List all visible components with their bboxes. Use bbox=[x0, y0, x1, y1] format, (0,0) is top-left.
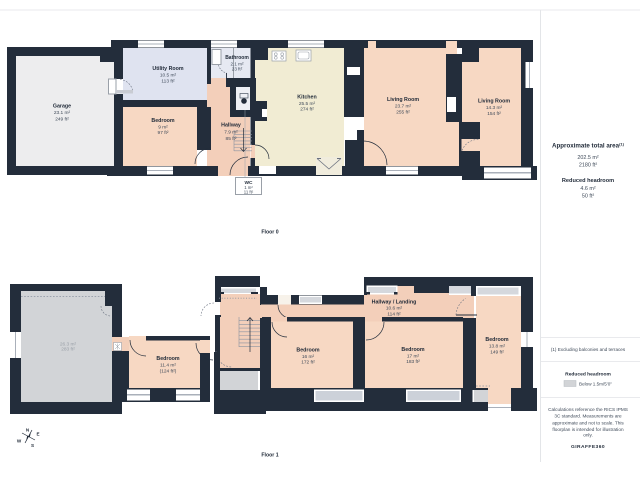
svg-text:Garage: Garage bbox=[53, 104, 71, 110]
svg-text:Utility Room: Utility Room bbox=[152, 66, 183, 72]
svg-text:14.3 m²: 14.3 m² bbox=[486, 105, 503, 111]
svg-text:Kitchen: Kitchen bbox=[297, 95, 316, 101]
svg-text:16 m²: 16 m² bbox=[302, 354, 315, 360]
svg-text:Bedroom: Bedroom bbox=[401, 347, 425, 353]
svg-text:Approximate total area(1): Approximate total area(1) bbox=[552, 142, 625, 150]
svg-text:Reduced headroom: Reduced headroom bbox=[565, 372, 611, 378]
svg-text:7.9 m²: 7.9 m² bbox=[224, 130, 238, 136]
svg-text:Floor 1: Floor 1 bbox=[261, 453, 278, 459]
svg-text:283 ft²: 283 ft² bbox=[61, 347, 75, 353]
svg-text:10.5 m²: 10.5 m² bbox=[160, 72, 177, 78]
svg-text:13.8 m²: 13.8 m² bbox=[489, 344, 506, 350]
svg-text:Living Room: Living Room bbox=[387, 97, 419, 103]
svg-text:97 ft²: 97 ft² bbox=[158, 130, 169, 136]
svg-text:25.5 m²: 25.5 m² bbox=[299, 101, 316, 107]
svg-text:Living Room: Living Room bbox=[478, 99, 510, 105]
svg-text:11.4 m²: 11.4 m² bbox=[160, 362, 176, 368]
svg-text:Below 1.5m/5'0": Below 1.5m/5'0" bbox=[579, 382, 612, 387]
svg-text:Bedroom: Bedroom bbox=[485, 337, 509, 343]
svg-text:(1) Excluding balconies and te: (1) Excluding balconies and terraces bbox=[551, 347, 626, 352]
svg-text:10.6 m²: 10.6 m² bbox=[386, 306, 403, 312]
svg-text:3C standard. Measurements are: 3C standard. Measurements are bbox=[554, 414, 622, 419]
svg-text:Hallway / Landing: Hallway / Landing bbox=[372, 300, 417, 306]
svg-text:50 ft²: 50 ft² bbox=[582, 194, 594, 200]
svg-text:202.5 m²: 202.5 m² bbox=[577, 155, 598, 161]
svg-text:11 ft²: 11 ft² bbox=[244, 190, 254, 195]
svg-text:E: E bbox=[36, 432, 39, 437]
svg-text:only.: only. bbox=[583, 432, 593, 437]
svg-text:113 ft²: 113 ft² bbox=[161, 79, 175, 85]
svg-text:172 ft²: 172 ft² bbox=[301, 360, 315, 366]
svg-text:Hallway: Hallway bbox=[221, 123, 241, 129]
svg-text:2180 ft²: 2180 ft² bbox=[579, 162, 597, 168]
svg-text:Floor 0: Floor 0 bbox=[261, 230, 278, 236]
svg-text:Bedroom: Bedroom bbox=[156, 356, 180, 362]
svg-text:Bedroom: Bedroom bbox=[151, 118, 175, 124]
svg-text:249 ft²: 249 ft² bbox=[55, 117, 69, 123]
svg-text:149 ft²: 149 ft² bbox=[490, 350, 504, 356]
svg-text:23.1 m²: 23.1 m² bbox=[54, 110, 71, 116]
svg-text:154 ft²: 154 ft² bbox=[487, 111, 501, 117]
svg-text:114 ft²: 114 ft² bbox=[387, 312, 401, 318]
svg-text:255 ft²: 255 ft² bbox=[396, 110, 410, 116]
svg-text:W: W bbox=[17, 439, 22, 444]
svg-text:(124 ft²): (124 ft²) bbox=[160, 369, 177, 375]
svg-text:approximate and not to scale.: approximate and not to scale. This bbox=[552, 420, 624, 425]
svg-text:4.6 m²: 4.6 m² bbox=[580, 186, 595, 192]
svg-text:9 m²: 9 m² bbox=[158, 125, 168, 131]
svg-text:Bathroom: Bathroom bbox=[225, 55, 249, 61]
svg-text:85 ft²: 85 ft² bbox=[226, 136, 237, 142]
svg-text:274 ft²: 274 ft² bbox=[300, 107, 314, 113]
svg-text:183 ft²: 183 ft² bbox=[406, 359, 420, 365]
svg-text:S: S bbox=[31, 443, 34, 448]
svg-text:floorplan is intended for illu: floorplan is intended for illustration bbox=[552, 427, 624, 432]
svg-text:23.7 m²: 23.7 m² bbox=[395, 104, 412, 110]
svg-text:Calculations reference the RIC: Calculations reference the RICS IPMS bbox=[548, 407, 628, 412]
svg-text:Bedroom: Bedroom bbox=[296, 348, 320, 354]
svg-text:GIRAFFE360: GIRAFFE360 bbox=[571, 444, 605, 450]
svg-text:23 ft²: 23 ft² bbox=[232, 67, 243, 72]
svg-text:Reduced headroom: Reduced headroom bbox=[562, 178, 614, 184]
svg-text:17 m²: 17 m² bbox=[407, 353, 420, 359]
